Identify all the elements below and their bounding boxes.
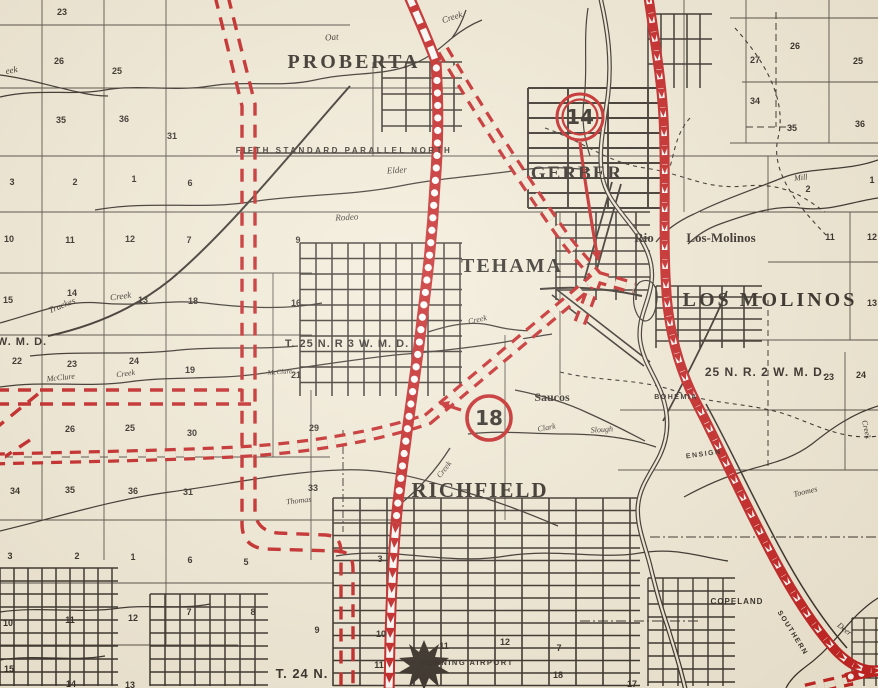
section-number: 26 bbox=[790, 41, 800, 51]
section-number: 23 bbox=[67, 359, 77, 369]
section-number: 33 bbox=[308, 483, 318, 493]
section-number: 26 bbox=[65, 424, 75, 434]
section-number: 1 bbox=[869, 175, 874, 185]
section-number: 31 bbox=[183, 487, 193, 497]
label-ensign: ENSIGN bbox=[686, 449, 722, 461]
southern-pacific-railroad bbox=[644, 0, 878, 675]
creek-thomas: Thomas bbox=[286, 495, 312, 507]
section-number: 34 bbox=[10, 486, 20, 496]
section-number: 21 bbox=[291, 370, 301, 380]
creek-mcclure: McClure bbox=[45, 372, 75, 384]
section-number: 16 bbox=[291, 298, 301, 308]
section-number: 35 bbox=[787, 123, 797, 133]
section-number: 10 bbox=[4, 234, 14, 244]
section-number: 22 bbox=[12, 356, 22, 366]
township-25n-r2w: 25 N. R. 2 W. M. D. bbox=[705, 365, 827, 379]
section-number: 12 bbox=[867, 232, 877, 242]
creek-slough: Slough bbox=[590, 424, 613, 435]
section-number: 17 bbox=[627, 679, 637, 688]
section-number: 36 bbox=[128, 486, 138, 496]
section-number: 11 bbox=[825, 232, 835, 242]
label-fifth-standard-parallel: FIFTH STANDARD PARALLEL NORTH bbox=[236, 146, 453, 155]
section-number: 10 bbox=[3, 618, 13, 628]
section-number: 11 bbox=[439, 641, 449, 651]
section-number: 9 bbox=[295, 235, 300, 245]
section-number: 3 bbox=[377, 554, 382, 564]
section-number: 18 bbox=[188, 296, 198, 306]
creek-toomes: Toomes bbox=[793, 484, 819, 499]
route-number: 18 bbox=[475, 406, 503, 430]
creek-mcclure-2: McClure bbox=[266, 367, 292, 377]
section-number: 36 bbox=[119, 114, 129, 124]
section-number: 18 bbox=[553, 670, 563, 680]
section-number: 8 bbox=[250, 607, 255, 617]
section-number: 3 bbox=[7, 551, 12, 561]
creek-eek: eek bbox=[5, 64, 20, 76]
arrow-route-14 bbox=[580, 142, 598, 260]
town-tehama: TEHAMA bbox=[461, 255, 563, 277]
section-number: 23 bbox=[57, 7, 67, 17]
section-number: 11 bbox=[374, 660, 384, 670]
township-t25n-r3w: T. 25 N. R 3 W. M. D. bbox=[285, 338, 409, 350]
section-number: 35 bbox=[65, 485, 75, 495]
town-proberta: PROBERTA bbox=[288, 51, 421, 73]
place-rio: Rio bbox=[634, 230, 654, 245]
section-number: 1 bbox=[131, 174, 136, 184]
section-number: 25 bbox=[853, 56, 863, 66]
section-number: 23 bbox=[824, 372, 834, 382]
section-number: 12 bbox=[500, 637, 510, 647]
section-number: 30 bbox=[187, 428, 197, 438]
label-copeland: COPELAND bbox=[711, 597, 764, 606]
town-los-molinos: LOS MOLINOS bbox=[683, 289, 858, 311]
section-number: 25 bbox=[112, 66, 122, 76]
township-t24n: T. 24 N. bbox=[276, 666, 329, 681]
railroad-side-road bbox=[706, 404, 847, 648]
section-number: 11 bbox=[65, 235, 75, 245]
section-number: 7 bbox=[186, 607, 191, 617]
creek-mill: Mill bbox=[793, 172, 809, 183]
route-number: 14 bbox=[566, 105, 594, 129]
town-richfield: RICHFIELD bbox=[411, 478, 548, 502]
township-wmd: W. M. D. bbox=[0, 336, 47, 348]
section-number: 9 bbox=[314, 625, 319, 635]
creek-rodeo: Rodeo bbox=[334, 211, 359, 222]
section-number: 11 bbox=[65, 615, 75, 625]
section-number: 15 bbox=[4, 664, 14, 674]
creek-truckes-creek: Creek bbox=[109, 289, 132, 302]
creek-toomes-creek: Creek bbox=[860, 419, 873, 440]
section-number: 2 bbox=[72, 177, 77, 187]
section-number: 13 bbox=[867, 298, 877, 308]
proberta-diagonal-road bbox=[48, 86, 350, 336]
label-corning-airport: CORNING AIRPORT bbox=[420, 658, 513, 667]
section-number: 14 bbox=[67, 288, 77, 298]
creek-mcclure-creek: Creek bbox=[116, 368, 136, 380]
section-number: 15 bbox=[3, 295, 13, 305]
label-bohemia: BOHEMIA bbox=[654, 394, 698, 401]
section-number: 31 bbox=[167, 131, 177, 141]
section-number: 3 bbox=[9, 177, 14, 187]
place-saucos: Saucos bbox=[534, 390, 570, 404]
section-number: 34 bbox=[750, 96, 760, 106]
section-number: 36 bbox=[855, 119, 865, 129]
map-canvas: 1418 PROBERTAGERBERTEHAMALOS MOLINOSRICH… bbox=[0, 0, 878, 688]
section-number: 14 bbox=[66, 679, 76, 688]
section-number: 6 bbox=[187, 178, 192, 188]
section-number: 12 bbox=[128, 613, 138, 623]
section-number: 24 bbox=[856, 370, 866, 380]
road-map: 1418 PROBERTAGERBERTEHAMALOS MOLINOSRICH… bbox=[0, 0, 878, 688]
section-number: 13 bbox=[138, 295, 148, 305]
place-los-molinos-small: Los-Molinos bbox=[686, 230, 755, 245]
section-number: 2 bbox=[74, 551, 79, 561]
town-gerber: GERBER bbox=[531, 163, 623, 184]
section-number: 27 bbox=[750, 55, 760, 65]
section-number: 35 bbox=[56, 115, 66, 125]
section-number: 29 bbox=[309, 423, 319, 433]
creek-truckes: Truckes bbox=[47, 295, 77, 315]
creek-elder: Elder bbox=[386, 164, 408, 175]
creek-oat: Oat bbox=[325, 31, 340, 42]
section-number: 24 bbox=[129, 356, 139, 366]
section-number: 1 bbox=[130, 552, 135, 562]
route-shield-18: 18 bbox=[467, 396, 511, 440]
section-number: 19 bbox=[185, 365, 195, 375]
section-number: 13 bbox=[125, 680, 135, 688]
section-number: 25 bbox=[125, 423, 135, 433]
section-number: 7 bbox=[556, 643, 561, 653]
section-number: 12 bbox=[125, 234, 135, 244]
creek-clark: Clark bbox=[537, 421, 557, 433]
section-number: 2 bbox=[805, 184, 810, 194]
section-number: 5 bbox=[243, 557, 248, 567]
section-number: 10 bbox=[376, 629, 386, 639]
creek-thomas-creek: Creek bbox=[435, 459, 454, 480]
section-number: 26 bbox=[54, 56, 64, 66]
section-number: 7 bbox=[186, 235, 191, 245]
section-number: 6 bbox=[187, 555, 192, 565]
